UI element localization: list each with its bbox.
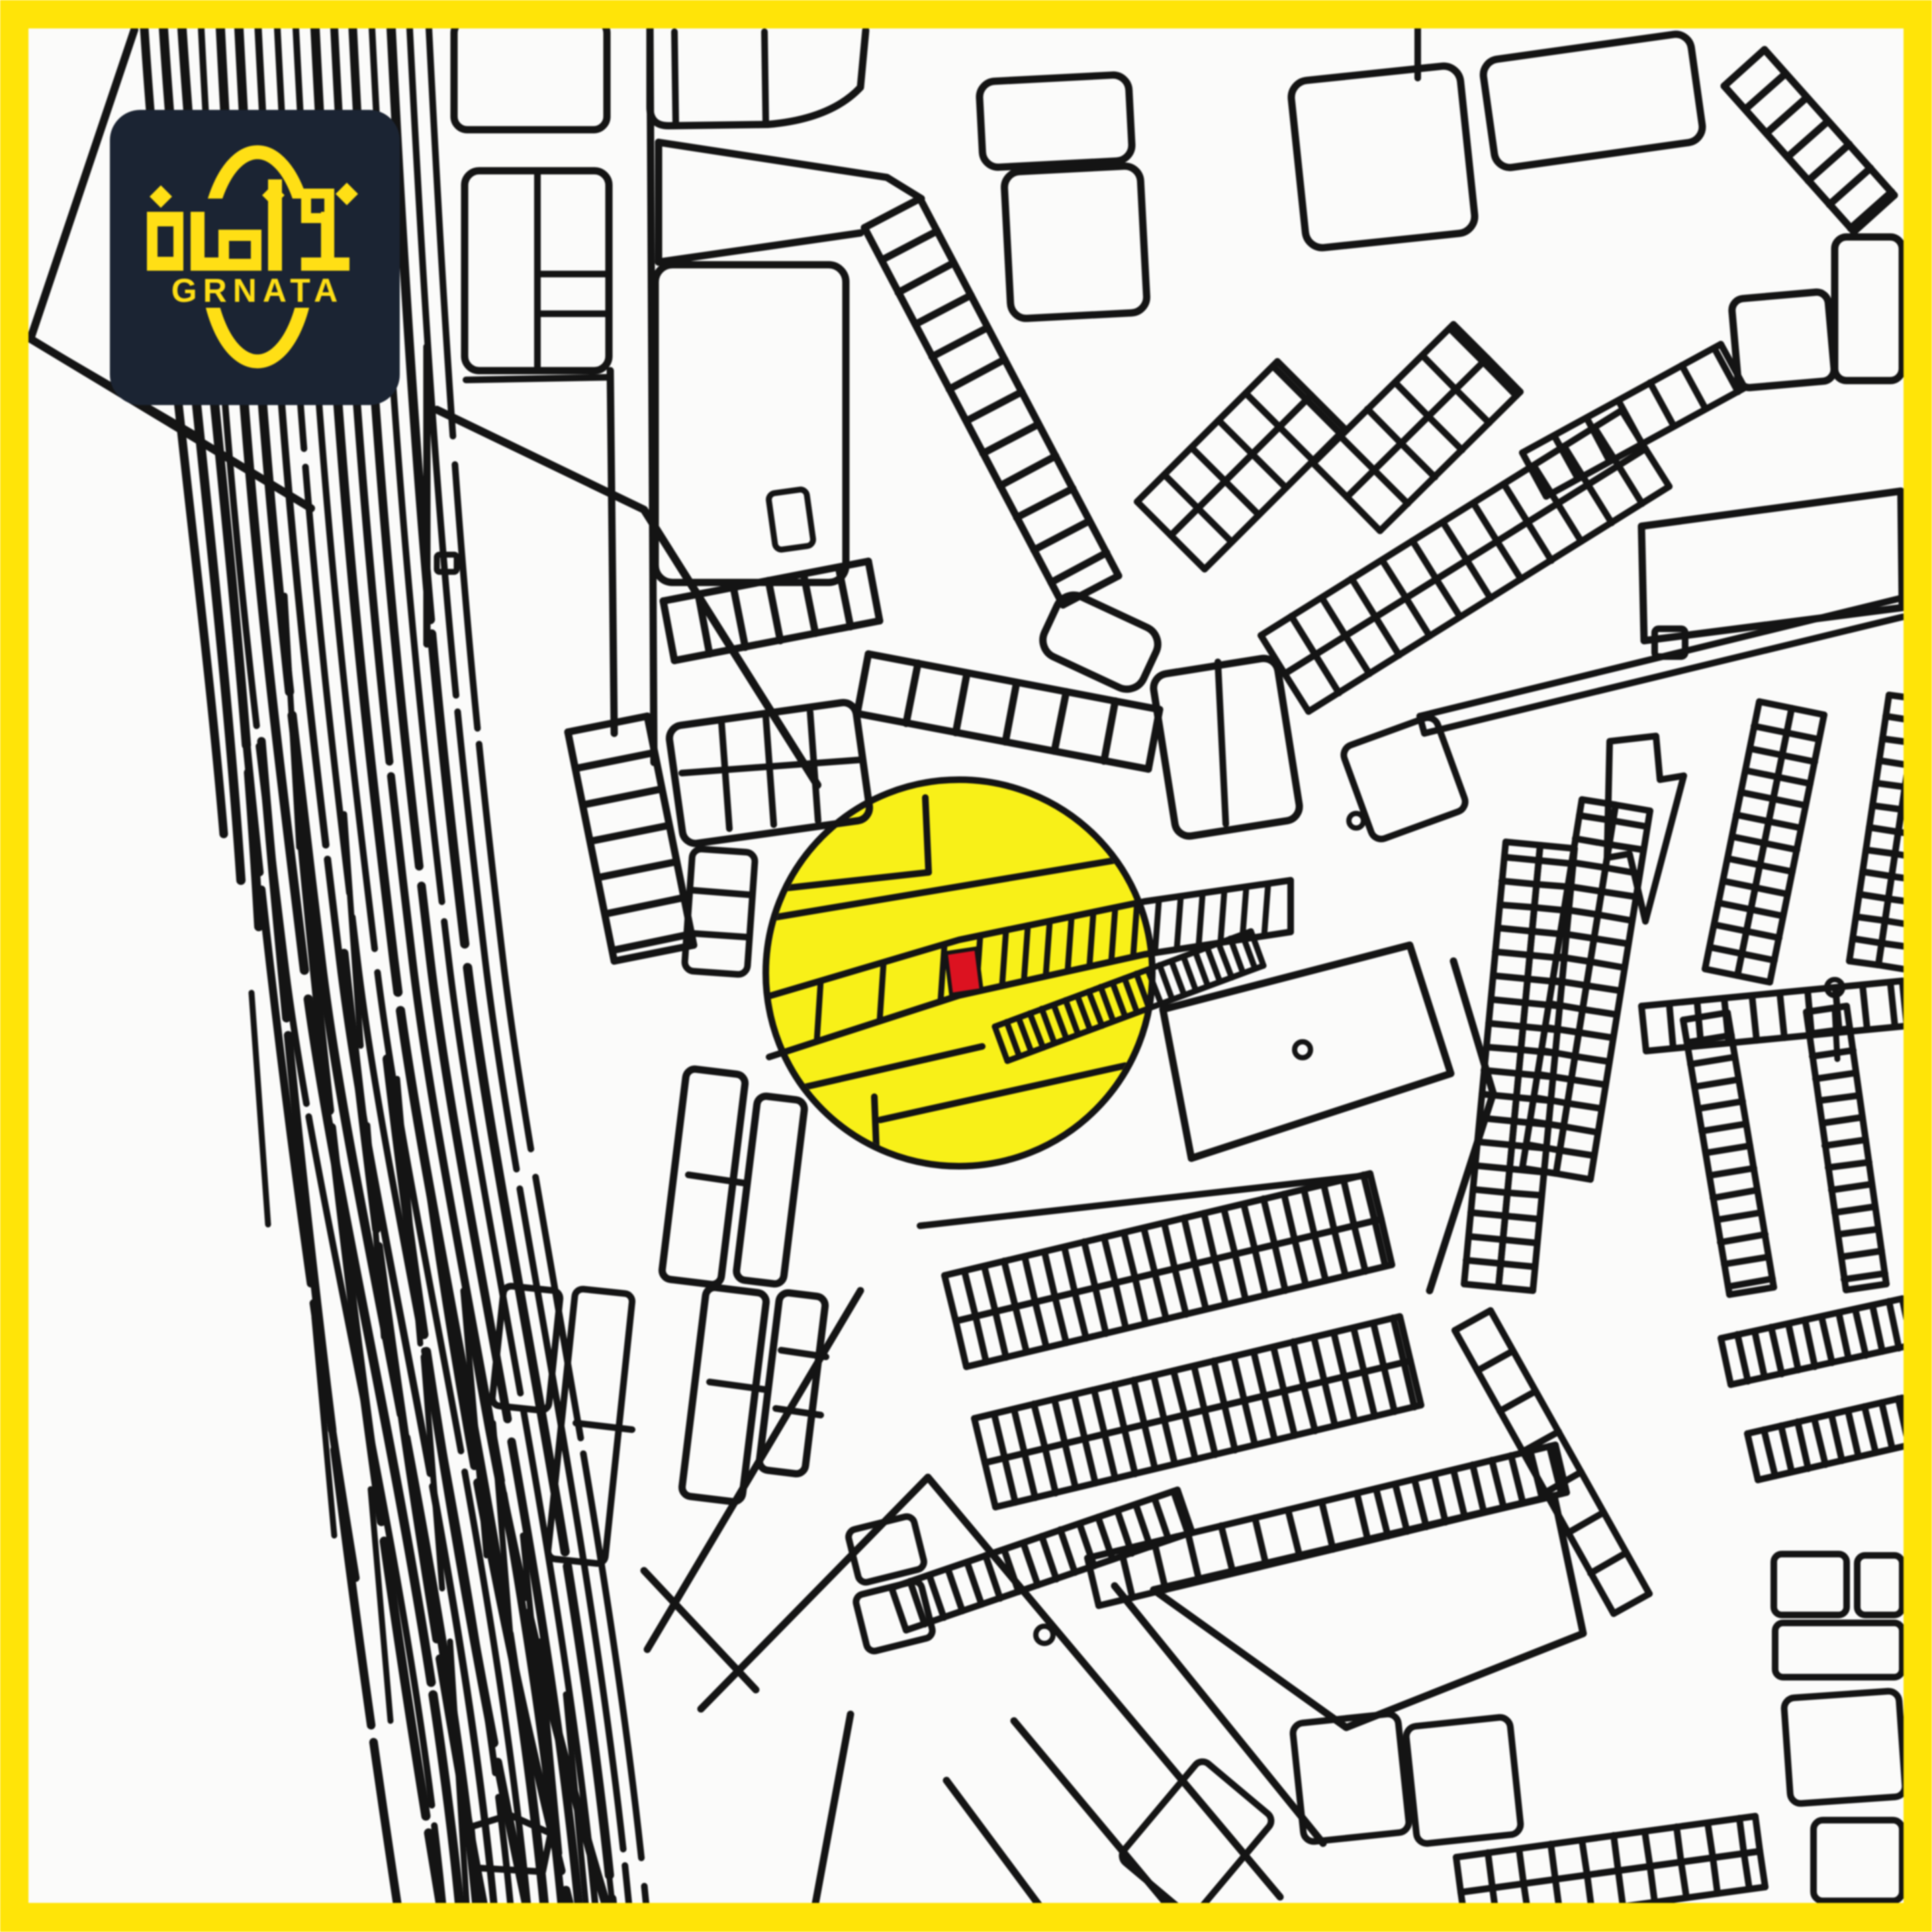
svg-text:GRNATA: GRNATA — [171, 272, 344, 309]
